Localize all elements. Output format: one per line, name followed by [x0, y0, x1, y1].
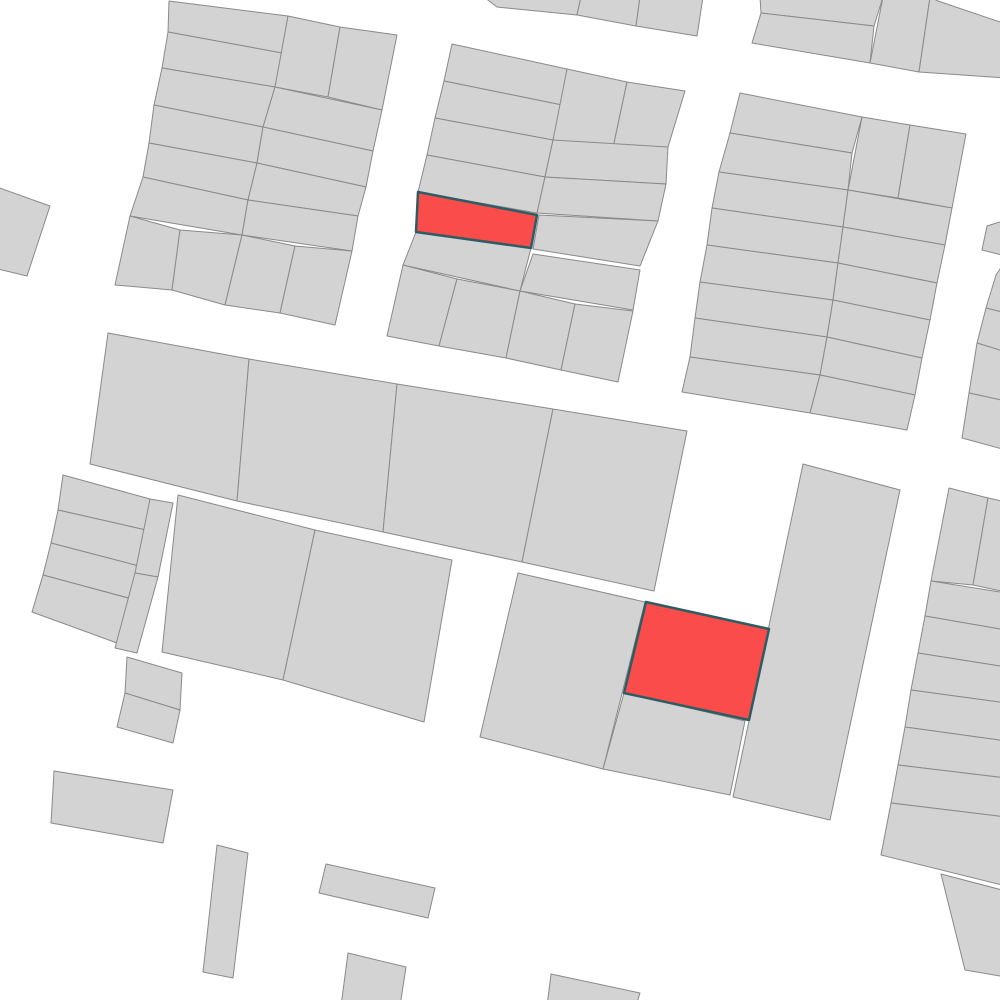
parcel-south-scatter2[interactable]	[203, 845, 248, 978]
parcel-topright-corner2[interactable]	[898, 125, 966, 208]
parcel-east-edge-1[interactable]	[986, 260, 1000, 313]
parcel-topsliver-2[interactable]	[577, 0, 640, 26]
parcel-topmid-east2[interactable]	[537, 177, 666, 221]
parcel-topsliver-3[interactable]	[636, 0, 703, 36]
parcel-south-scatter5[interactable]	[547, 974, 640, 1000]
parcel-west-edge[interactable]	[0, 186, 50, 276]
parcel-midrow-big1[interactable]	[90, 333, 249, 501]
parcel-map[interactable]	[0, 0, 1000, 1000]
parcel-south-scatter3[interactable]	[319, 864, 435, 918]
parcel-topleft-bottom1[interactable]	[115, 216, 180, 290]
parcel-south-scatter1[interactable]	[51, 771, 173, 843]
parcel-midrow-big2[interactable]	[237, 359, 397, 532]
parcel-topsliver-1[interactable]	[484, 0, 581, 15]
parcel-south-scatter4[interactable]	[341, 953, 406, 1000]
parcel-topright-strip4[interactable]	[919, 0, 1000, 78]
parcel-east-edge-top[interactable]	[982, 220, 1000, 256]
parcel-topleft-corner2[interactable]	[328, 27, 397, 110]
parcel-southeast-row7[interactable]	[881, 803, 1000, 886]
parcel-east-edge-3[interactable]	[969, 343, 1000, 401]
parcel-midrow2-big2[interactable]	[283, 530, 452, 722]
parcel-topmid-east1[interactable]	[545, 140, 668, 184]
parcel-east-edge-4[interactable]	[962, 393, 1000, 450]
map-viewport[interactable]	[0, 0, 1000, 1000]
parcel-south-scatter6[interactable]	[941, 874, 1000, 977]
